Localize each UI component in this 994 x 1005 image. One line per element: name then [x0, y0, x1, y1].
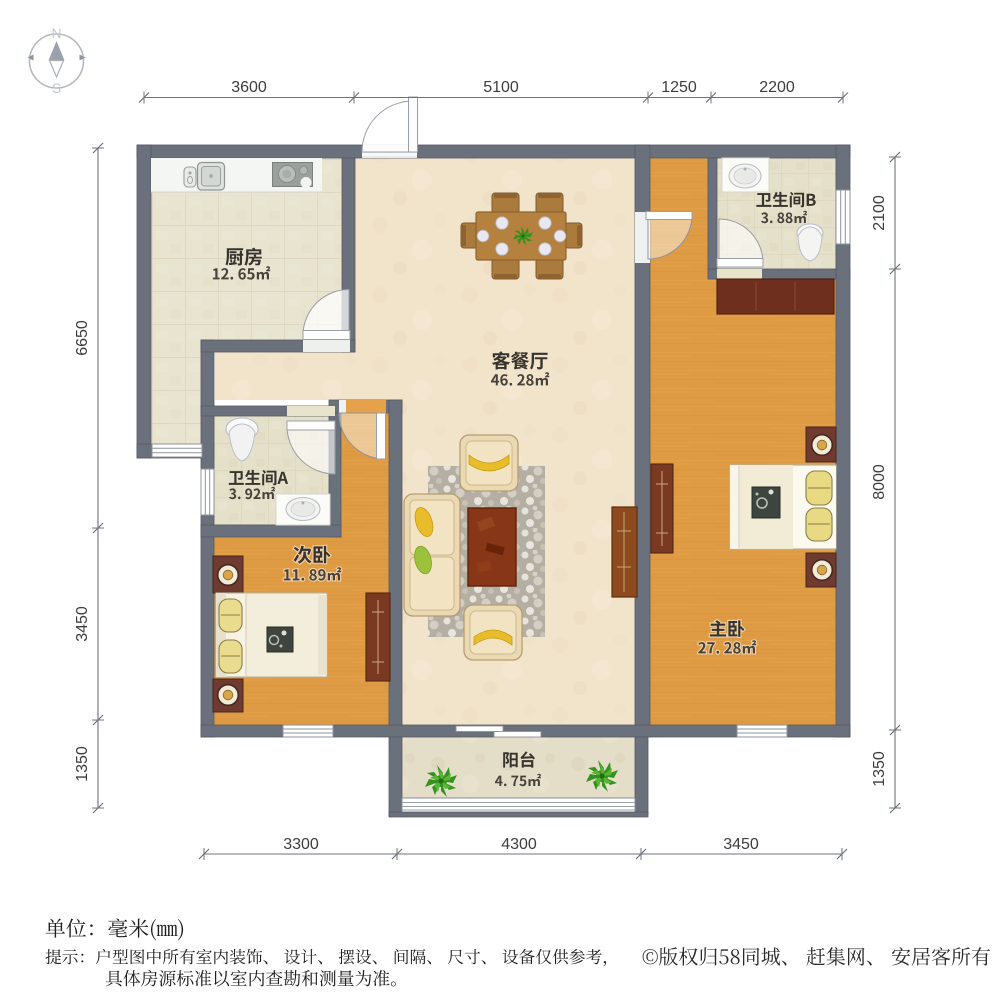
- svg-text:N: N: [51, 25, 61, 41]
- svg-text:1350: 1350: [74, 746, 91, 782]
- svg-text:3600: 3600: [231, 79, 267, 96]
- svg-text:1350: 1350: [871, 751, 888, 787]
- svg-text:6650: 6650: [74, 320, 91, 356]
- svg-text:3300: 3300: [283, 836, 319, 853]
- svg-text:2100: 2100: [871, 195, 888, 231]
- svg-text:5100: 5100: [483, 79, 519, 96]
- svg-text:3450: 3450: [74, 606, 91, 642]
- svg-text:8000: 8000: [871, 464, 888, 500]
- svg-text:4300: 4300: [501, 836, 537, 853]
- svg-text:2200: 2200: [759, 79, 795, 96]
- svg-text:1250: 1250: [661, 79, 697, 96]
- svg-text:3450: 3450: [723, 836, 759, 853]
- svg-text:S: S: [52, 80, 61, 96]
